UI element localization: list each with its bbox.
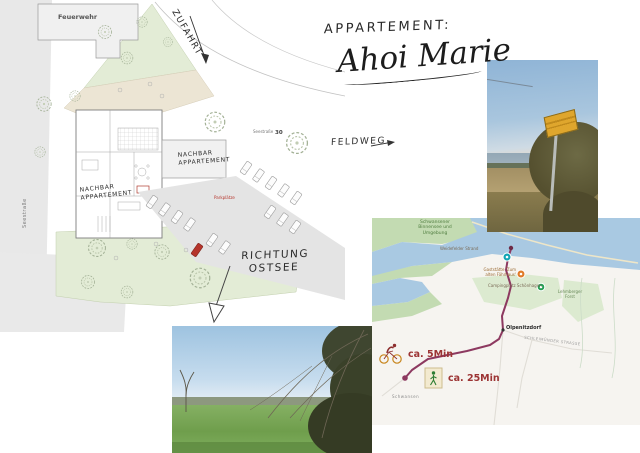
- town-sign-photo: [487, 60, 598, 232]
- pedestrian-icon: [425, 368, 442, 388]
- feuerwehr-label: Feuerwehr: [58, 13, 98, 21]
- terrace: [118, 128, 158, 150]
- bike-time-label: ca. 5Min: [408, 349, 453, 360]
- camping-label: Campingplatz Schönhagen: [488, 284, 536, 289]
- power-line: [487, 78, 533, 87]
- richtung-ostsee-label: RICHTUNG OSTSEE: [240, 248, 309, 277]
- town-label: Olpenitzdorf: [506, 325, 541, 331]
- restaurant-l2: alten Fährhaus': [478, 273, 516, 278]
- nature-area-label: Schwansener Binnensee und Umgebung: [412, 220, 458, 236]
- route-start-dot: [402, 375, 408, 381]
- trees-overlay: [172, 326, 372, 453]
- restaurant-label: Gaststätte 'Zum alten Fährhaus': [478, 268, 516, 278]
- address-street-label: Seestraße: [253, 129, 274, 134]
- nature-l3: Umgebung: [412, 231, 458, 236]
- route-map: Schwansener Binnensee und Umgebung Weide…: [372, 218, 640, 425]
- route-end-dot: [509, 246, 513, 250]
- address-number-label: 30: [275, 130, 283, 136]
- town-dot: [501, 328, 504, 331]
- richtung-l2: OSTSEE: [240, 261, 308, 276]
- landscape-photo: [172, 326, 372, 453]
- title-label: APPARTEMENT:: [324, 18, 452, 37]
- small-bare-tree: [180, 370, 194, 412]
- restaurant-marker-dot: [520, 273, 523, 276]
- site-plan: Feuerwehr: [0, 0, 345, 332]
- nature-l2: Binnensee und: [412, 225, 458, 230]
- street-name-label: Seestraße: [22, 198, 28, 228]
- forest-l2: Forst: [554, 295, 586, 300]
- page: Feuerwehr: [0, 0, 640, 453]
- tree-canopy-3: [308, 393, 372, 453]
- beach-marker-dot: [506, 256, 509, 259]
- area-label: Schwansen: [392, 395, 419, 400]
- parking-label: Parkplätze: [214, 195, 235, 200]
- feldweg-arrow-icon: [370, 138, 396, 150]
- walk-time-label: ca. 25Min: [448, 373, 500, 384]
- beach-label: Weidefelder Strand: [440, 247, 478, 252]
- forest-label: Lehmberger Forst: [554, 290, 586, 300]
